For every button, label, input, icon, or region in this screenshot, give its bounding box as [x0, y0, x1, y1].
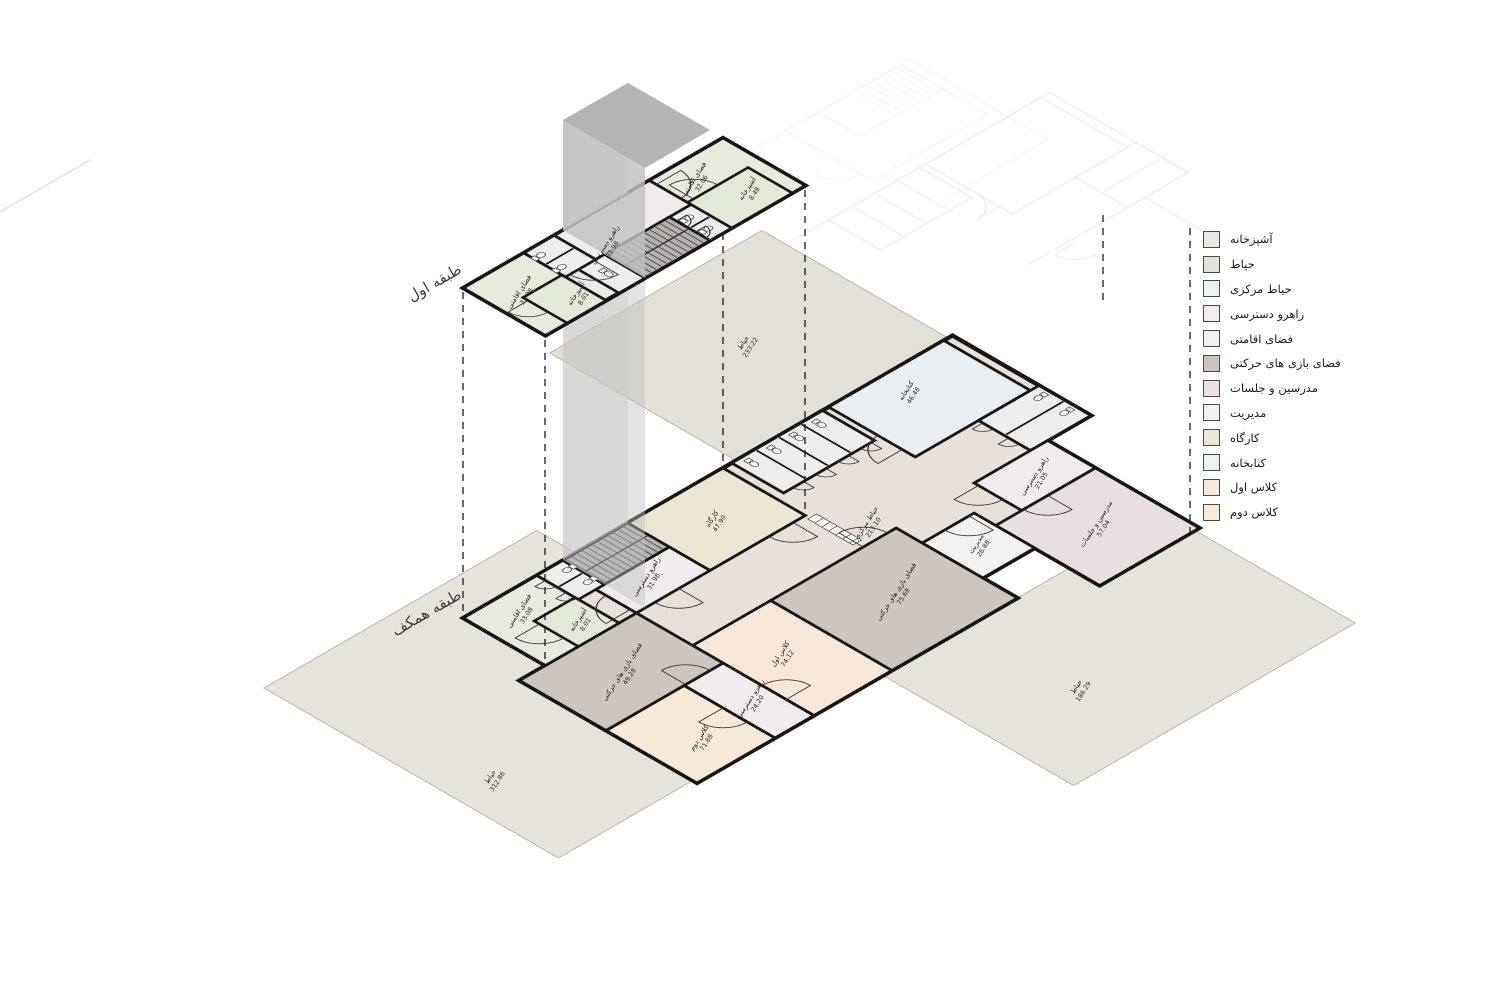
color-swatch-icon: [1203, 479, 1220, 496]
legend-item: کتابخانه: [1203, 450, 1341, 475]
color-swatch-icon: [1203, 380, 1220, 397]
color-swatch-icon: [1203, 404, 1220, 421]
faint-edge-line: [0, 159, 92, 212]
legend-item: کلاس اول: [1203, 475, 1341, 500]
legend-label: حیاط: [1230, 257, 1255, 271]
legend-item: حیاط: [1203, 252, 1341, 277]
legend-item: فضای بازی های حرکتی: [1203, 351, 1341, 376]
legend-label: راهرو دسترسی: [1230, 307, 1304, 321]
legend-item: کلاس دوم: [1203, 500, 1341, 525]
legend-item: کارگاه: [1203, 425, 1341, 450]
legend-item: حیاط مرکزی: [1203, 277, 1341, 302]
floor-label-first: طبقه اول: [404, 260, 464, 305]
legend-item: فضای اقامتی: [1203, 326, 1341, 351]
color-swatch-icon: [1203, 454, 1220, 471]
color-swatch-icon: [1203, 256, 1220, 273]
legend-item: مدیریت: [1203, 401, 1341, 426]
legend-label: آشپزخانه: [1230, 232, 1273, 246]
legend: آشپزخانه حیاط حیاط مرکزی راهرو دسترسی فض…: [1203, 227, 1341, 525]
color-swatch-icon: [1203, 231, 1220, 248]
legend-item: آشپزخانه: [1203, 227, 1341, 252]
legend-label: فضای اقامتی: [1230, 332, 1293, 346]
legend-item: مدرسین و جلسات: [1203, 376, 1341, 401]
legend-label: مدیریت: [1230, 406, 1266, 420]
color-swatch-icon: [1203, 330, 1220, 347]
color-swatch-icon: [1203, 305, 1220, 322]
legend-label: فضای بازی های حرکتی: [1230, 356, 1341, 370]
color-swatch-icon: [1203, 280, 1220, 297]
legend-label: مدرسین و جلسات: [1230, 381, 1318, 395]
legend-label: کارگاه: [1230, 431, 1260, 445]
legend-item: راهرو دسترسی: [1203, 301, 1341, 326]
color-swatch-icon: [1203, 429, 1220, 446]
color-swatch-icon: [1203, 504, 1220, 521]
legend-label: کلاس دوم: [1230, 505, 1278, 519]
legend-label: کلاس اول: [1230, 480, 1277, 494]
color-swatch-icon: [1203, 355, 1220, 372]
axonometric-floorplan-diagram: فضای اقامتی32.06 آشپزخانه8.48 راهرو دستر…: [0, 0, 1500, 1000]
legend-label: حیاط مرکزی: [1230, 282, 1292, 296]
legend-label: کتابخانه: [1230, 456, 1266, 470]
